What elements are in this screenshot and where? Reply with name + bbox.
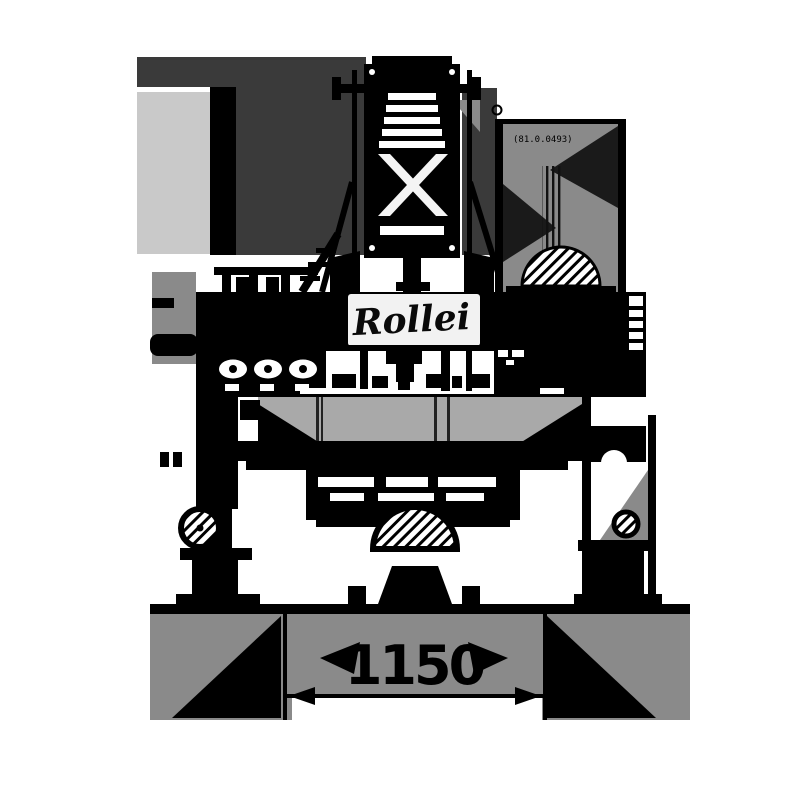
stand-right-rail bbox=[618, 124, 626, 292]
brand-logo: Rollei bbox=[350, 296, 471, 344]
lead-screw bbox=[434, 397, 437, 443]
left-column bbox=[160, 397, 260, 606]
body-bottom-edge bbox=[258, 394, 582, 397]
left-step bbox=[240, 400, 260, 420]
body-slot bbox=[540, 388, 564, 394]
rest-block bbox=[236, 277, 252, 292]
bolt bbox=[369, 245, 375, 251]
lead-screw bbox=[316, 397, 319, 443]
panel-block bbox=[372, 376, 388, 388]
head-right-rod bbox=[467, 70, 472, 256]
bolt bbox=[369, 69, 375, 75]
left-leg-box bbox=[192, 560, 238, 596]
center-pedestal bbox=[378, 566, 452, 604]
handwheel-hub bbox=[197, 525, 204, 532]
stair-rung bbox=[308, 262, 328, 267]
knob-center bbox=[299, 365, 307, 373]
right-leg-box bbox=[588, 551, 644, 595]
floor-line bbox=[150, 604, 690, 614]
table-top bbox=[232, 441, 584, 461]
body-slot bbox=[512, 350, 524, 357]
stand-top-rail bbox=[495, 119, 626, 124]
left-tick bbox=[173, 452, 182, 467]
dimension-text: 1150 bbox=[345, 634, 484, 697]
spindle-collar bbox=[396, 282, 430, 291]
ladder-rung bbox=[629, 317, 643, 321]
right-column bbox=[574, 397, 662, 606]
panel-block bbox=[332, 374, 356, 388]
lead-screw bbox=[447, 397, 450, 443]
ladder-rung bbox=[629, 306, 643, 310]
cabinet-divider bbox=[210, 87, 236, 255]
cooling-fin bbox=[388, 93, 436, 100]
left-column-block bbox=[196, 397, 238, 509]
panel-castle-stem bbox=[396, 362, 414, 382]
cabinet-top-band bbox=[137, 57, 366, 87]
apron-slot bbox=[386, 477, 428, 487]
bolt bbox=[449, 245, 455, 251]
apron-slot bbox=[438, 477, 496, 487]
cabinet-block bbox=[236, 87, 366, 255]
table-lip bbox=[246, 461, 568, 470]
apron-slot bbox=[330, 493, 364, 501]
knob-center bbox=[264, 365, 272, 373]
apron-slot bbox=[378, 493, 434, 501]
body-slot bbox=[300, 388, 336, 394]
top-rest-bar bbox=[214, 267, 318, 275]
left-bracket-plate bbox=[332, 77, 341, 100]
machine-elevation-svg: (81.0.0493) Rollei bbox=[0, 0, 800, 800]
cooling-fin bbox=[384, 117, 440, 124]
panel-block bbox=[470, 374, 490, 388]
cooling-fin bbox=[379, 141, 445, 148]
right-wing bbox=[464, 251, 494, 292]
dimension-callout: 1150 bbox=[150, 614, 690, 720]
panel-block bbox=[452, 376, 462, 388]
rest-post bbox=[222, 275, 231, 292]
knob-center bbox=[229, 365, 237, 373]
left-tick bbox=[160, 452, 169, 467]
bolt bbox=[449, 69, 455, 75]
right-bracket-plate bbox=[472, 77, 481, 100]
undercarriage bbox=[232, 394, 584, 604]
extension-line-right bbox=[543, 614, 547, 720]
panel-post bbox=[360, 351, 368, 391]
support-foot bbox=[462, 586, 480, 604]
extension-line-left bbox=[283, 614, 287, 720]
head-slot bbox=[380, 226, 444, 235]
technical-drawing: (81.0.0493) Rollei bbox=[0, 0, 800, 800]
panel-block bbox=[426, 374, 444, 388]
stair-rung bbox=[300, 276, 320, 281]
head-left-rod bbox=[352, 70, 357, 256]
panel-block bbox=[398, 381, 410, 390]
ladder-rung bbox=[629, 339, 643, 343]
cooling-fin bbox=[386, 105, 438, 112]
left-foot-plate bbox=[180, 548, 252, 560]
bracket-arch bbox=[601, 450, 627, 476]
right-stand: (81.0.0493) bbox=[495, 119, 626, 300]
panel-top-strip bbox=[326, 345, 494, 351]
body-slot bbox=[506, 360, 514, 365]
support-foot bbox=[348, 586, 366, 604]
left-bracket-arm bbox=[341, 84, 365, 93]
stand-left-rail bbox=[495, 124, 503, 292]
cooling-fin bbox=[382, 129, 442, 136]
apron-slot bbox=[318, 477, 374, 487]
left-handle bbox=[150, 334, 198, 356]
right-rail-outer bbox=[648, 415, 656, 604]
ladder-rung bbox=[629, 328, 643, 332]
right-foot-plate bbox=[578, 540, 656, 551]
knob-tab bbox=[260, 384, 274, 391]
rest-post bbox=[281, 275, 290, 292]
lead-screw bbox=[321, 397, 323, 443]
left-stub bbox=[152, 298, 174, 308]
cabinet-window bbox=[137, 92, 210, 254]
right-knob bbox=[614, 512, 638, 536]
part-number-label: (81.0.0493) bbox=[513, 135, 573, 145]
knob-tab bbox=[225, 384, 239, 391]
body-slot bbox=[498, 350, 508, 357]
rest-block bbox=[266, 277, 279, 292]
apron-slot bbox=[446, 493, 484, 501]
